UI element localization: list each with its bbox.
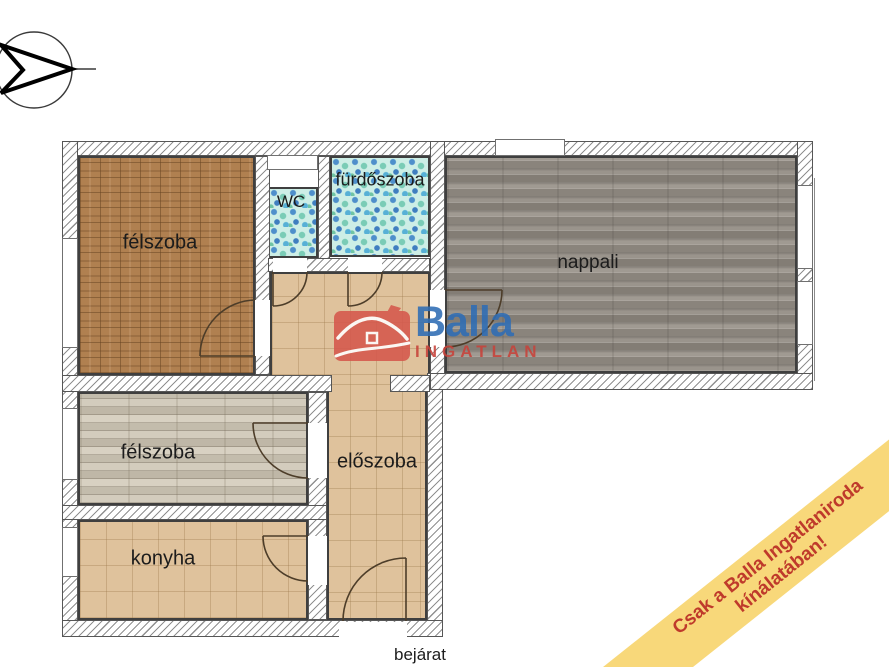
door-opening <box>348 258 382 272</box>
vent-opening <box>267 155 318 170</box>
room-label-felszoba-top: félszoba <box>123 232 198 255</box>
wall <box>430 373 813 390</box>
logo-house-icon <box>333 302 411 362</box>
floor-plan: Balla INGATLAN félszoba WC fürdőszoba na… <box>0 0 889 667</box>
room-felszoba-top <box>78 156 255 375</box>
room-label-wc: WC <box>277 192 305 212</box>
window <box>797 281 813 345</box>
room-label-nappali: nappali <box>557 252 618 274</box>
room-label-eloszoba: előszoba <box>337 451 417 474</box>
promo-banner: Csak a Balla Ingatlaniroda kínálatában! <box>581 404 889 667</box>
wall <box>62 375 332 392</box>
room-label-felszoba-mid: félszoba <box>121 442 196 465</box>
wall <box>427 373 443 637</box>
logo-brand-text: Balla <box>415 302 542 342</box>
wall <box>318 156 330 272</box>
entrance-door-opening <box>339 622 407 637</box>
door-opening <box>308 536 327 585</box>
brand-logo: Balla INGATLAN <box>333 302 542 362</box>
window <box>62 408 78 480</box>
door-opening <box>308 423 327 478</box>
logo-subtitle-text: INGATLAN <box>415 342 542 362</box>
window <box>62 238 78 348</box>
window <box>495 139 565 156</box>
wall <box>390 375 430 392</box>
window <box>62 527 78 577</box>
wall <box>62 505 327 520</box>
room-label-furdoszoba: fürdőszoba <box>335 170 424 191</box>
door-opening <box>255 300 270 356</box>
room-eloszoba-corridor <box>327 375 427 620</box>
compass-icon <box>0 32 96 108</box>
entrance-label: bejárat <box>394 645 446 665</box>
banner-line1: Csak a Balla Ingatlaniroda <box>668 475 867 640</box>
door-opening <box>273 258 307 272</box>
window <box>797 185 813 269</box>
room-label-konyha: konyha <box>131 548 196 571</box>
